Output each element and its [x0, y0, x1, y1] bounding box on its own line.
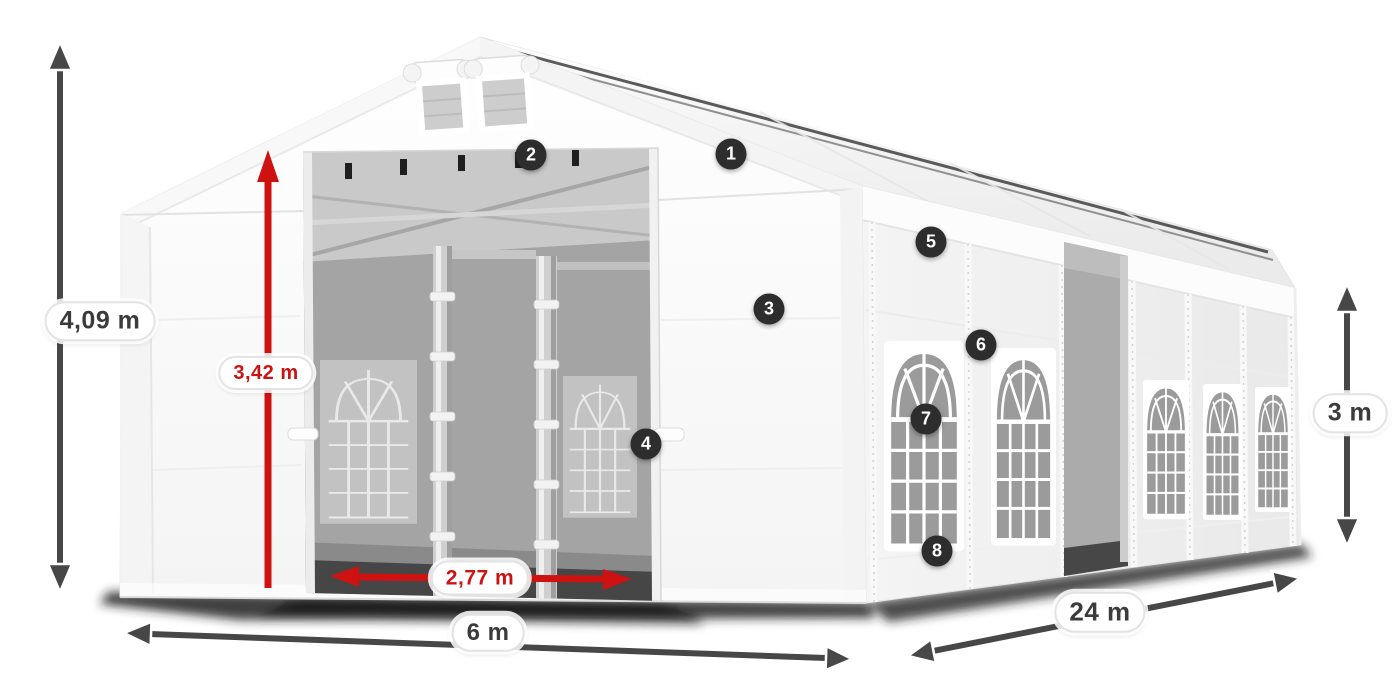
dim-label-side-height: 3 m [1313, 393, 1388, 433]
tent-dimension-diagram: 4,09 m 3,42 m 2,77 m 6 m 24 m 3 m 1 2 3 … [0, 0, 1400, 700]
dim-label-entrance-width: 2,77 m [431, 560, 529, 595]
dim-label-side-length: 24 m [1054, 592, 1145, 633]
dim-label-total-height-text: 4,09 m [60, 306, 141, 334]
callout-badge-8: 8 [922, 536, 953, 567]
callout-badge-6: 6 [966, 330, 997, 361]
dim-label-side-height-text: 3 m [1328, 398, 1373, 426]
callout-badge-2: 2 [516, 140, 547, 171]
dim-label-entrance-height-text: 3,42 m [233, 362, 298, 384]
tent-illustration [0, 0, 1400, 700]
callout-badge-5: 5 [916, 227, 947, 258]
dim-label-entrance-height: 3,42 m [218, 356, 313, 390]
entrance-opening-graphic [300, 145, 665, 606]
side-opening-graphic [1064, 242, 1128, 576]
callout-badge-3: 3 [754, 294, 785, 325]
callout-badge-7: 7 [911, 404, 942, 435]
dim-label-entrance-width-text: 2,77 m [446, 566, 514, 589]
dim-label-front-width: 6 m [452, 614, 525, 652]
callout-badge-4: 4 [631, 429, 662, 460]
dim-label-side-length-text: 24 m [1069, 597, 1130, 627]
dim-label-front-width-text: 6 m [467, 619, 510, 646]
callout-badge-1: 1 [716, 139, 747, 170]
door-strap-left [288, 428, 318, 440]
dim-label-total-height: 4,09 m [45, 301, 156, 341]
